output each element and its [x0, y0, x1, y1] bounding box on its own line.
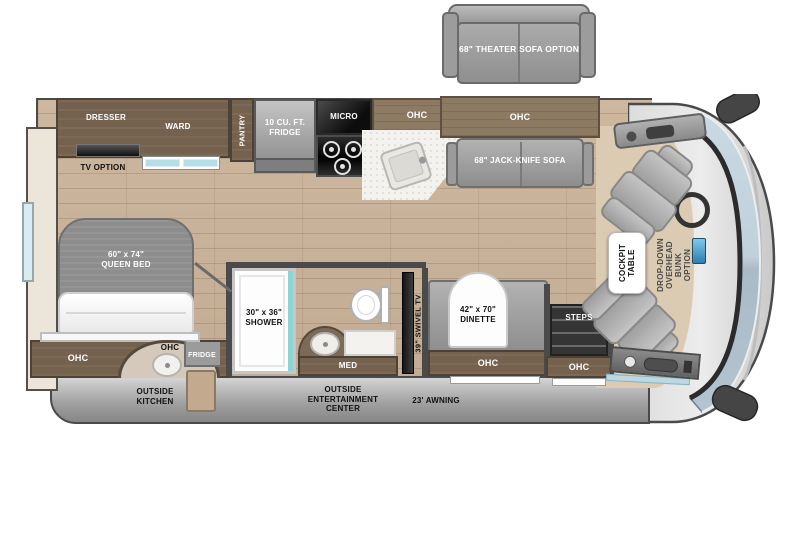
- bedroom-window-pane: [145, 159, 180, 167]
- cockpit-table-label: COCKPIT TABLE: [618, 244, 636, 282]
- toilet-bowl: [350, 288, 382, 322]
- med-label: MED: [298, 361, 398, 371]
- console-tray: [643, 357, 678, 373]
- dinette-ohc-label: OHC: [428, 358, 548, 369]
- sheet-fold: [66, 312, 186, 314]
- swivel-tv-label-wrap: 39" SWIVEL TV: [408, 272, 428, 374]
- console-dial-icon: [624, 355, 637, 368]
- kitchen-ohc-label: OHC: [372, 110, 462, 121]
- outside-sink-drain: [165, 363, 170, 368]
- ward-label: WARD: [146, 122, 210, 132]
- fridge-door: [256, 158, 314, 171]
- micro-label: MICRO: [316, 112, 372, 122]
- cockpit-table: COCKPIT TABLE: [608, 232, 646, 294]
- drop-down-bunk-label: DROP-DOWN OVERHEAD BUNK OPTION: [656, 237, 692, 293]
- kitchen-sink-basin: [388, 149, 425, 183]
- outside-entertainment-label: OUTSIDE ENTERTAINMENT CENTER: [293, 385, 393, 414]
- entry-door-window: [552, 378, 606, 386]
- bed-ohc-label: OHC: [48, 353, 108, 364]
- burner-icon: [345, 141, 362, 158]
- steps-label: STEPS: [550, 313, 608, 323]
- queen-bed-sheet: [58, 292, 194, 334]
- theater-sofa-label: 68" THEATER SOFA OPTION: [450, 44, 588, 54]
- pantry-label: PANTRY: [238, 114, 247, 146]
- toilet-seat: [357, 295, 375, 315]
- dinette-window: [450, 376, 540, 384]
- outside-fridge-label: FRIDGE: [182, 352, 222, 360]
- outside-kitchen-label: OUTSIDE KITCHEN: [112, 387, 198, 406]
- sofa-ohc-label: OHC: [470, 112, 570, 123]
- tv-recess: [76, 144, 140, 157]
- jack-knife-sofa-label: 68" JACK-KNIFE SOFA: [456, 156, 584, 166]
- vanity-sink: [310, 332, 340, 356]
- vanity-drain: [323, 342, 328, 347]
- bedroom-windows: [142, 156, 220, 170]
- theater-sofa-option: 68" THEATER SOFA OPTION: [440, 2, 598, 88]
- queen-bed-label: 60" x 74" QUEEN BED: [62, 250, 190, 269]
- dresser-label: DRESSER: [64, 113, 148, 123]
- burner-icon: [323, 141, 340, 158]
- burner-icon: [334, 158, 351, 175]
- dinette-label: 42" x 70" DINETTE: [450, 305, 506, 324]
- cooktop: [316, 135, 366, 177]
- console-switches: [683, 361, 692, 374]
- steps-ohc-label: OHC: [546, 362, 612, 373]
- vanity-counter: [344, 330, 396, 356]
- outside-sink: [152, 353, 182, 377]
- drop-down-bunk-wrap: DROP-DOWN OVERHEAD BUNK OPTION: [646, 198, 702, 332]
- fridge-label: 10 CU. FT. FRIDGE: [254, 118, 316, 137]
- dash-vent-icon: [626, 131, 637, 142]
- rear-window: [22, 202, 34, 282]
- awning-label: 23' AWNING: [396, 396, 476, 406]
- tv-option-label: TV OPTION: [64, 163, 142, 173]
- shower-label: 30" x 36" SHOWER: [234, 308, 294, 327]
- toilet-tank: [380, 286, 390, 324]
- bedroom-window-pane: [183, 159, 218, 167]
- swivel-tv-label: 39" SWIVEL TV: [414, 294, 423, 352]
- rv-floorplan: 68" THEATER SOFA OPTION OUTSIDE KITCHEN …: [0, 0, 800, 545]
- pantry-label-wrap: PANTRY: [228, 98, 256, 162]
